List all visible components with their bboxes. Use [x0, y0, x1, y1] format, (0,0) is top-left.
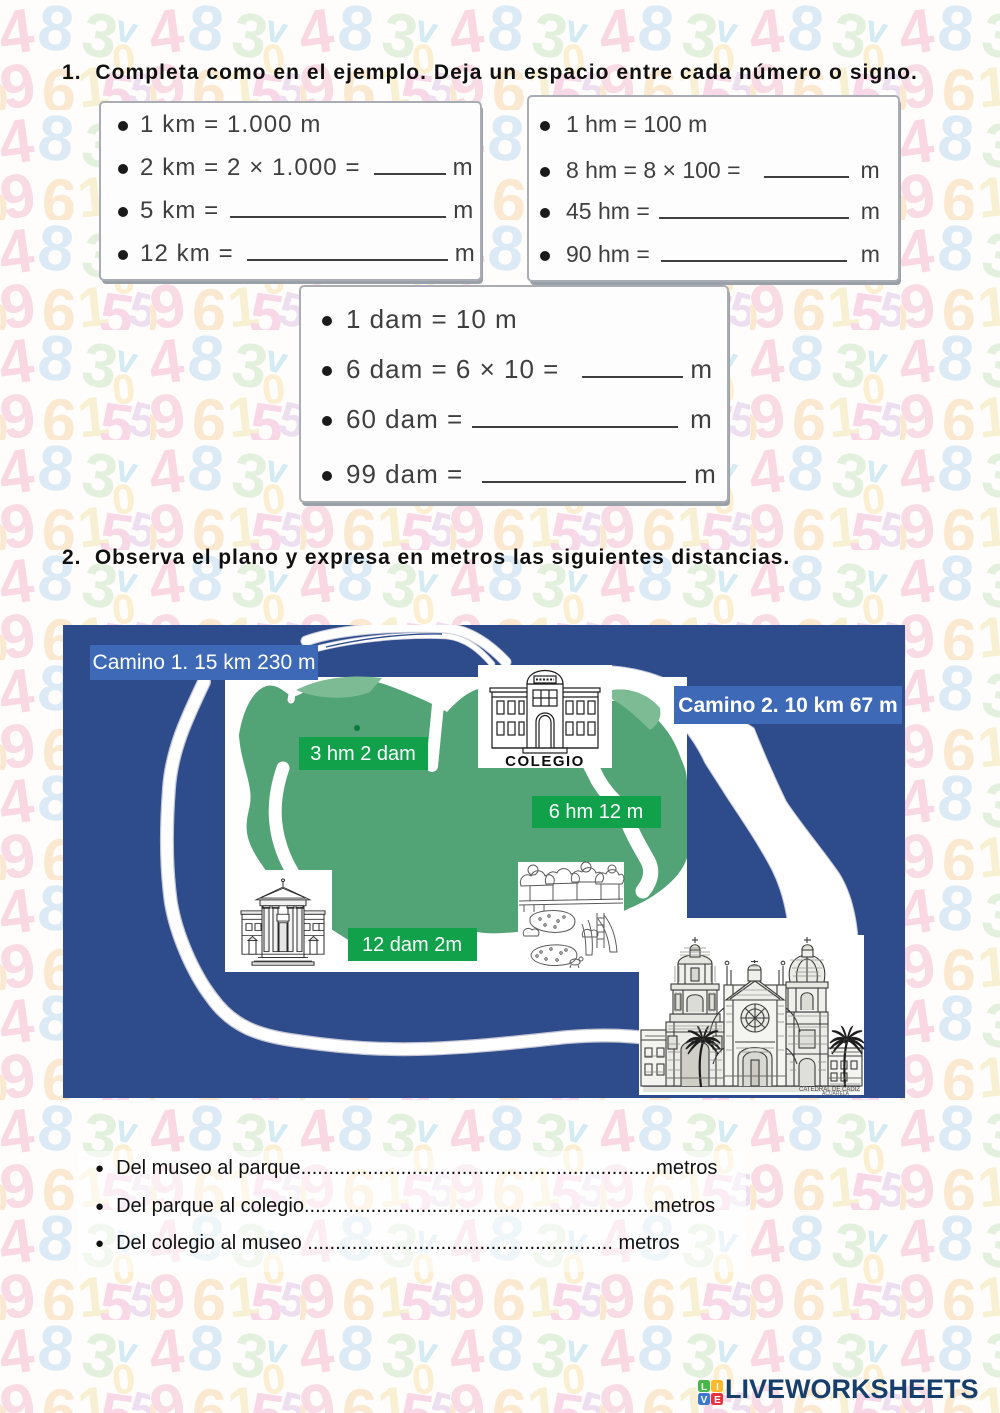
- svg-text:V: V: [701, 1395, 708, 1405]
- svg-text:ACUARELA: ACUARELA: [822, 1091, 850, 1097]
- svg-text:3 hm 2 dam: 3 hm 2 dam: [310, 743, 416, 765]
- svg-text:E: E: [714, 1395, 721, 1405]
- svg-text:6 hm 12 m: 6 hm 12 m: [549, 801, 643, 823]
- svg-text:COLEGIO: COLEGIO: [505, 753, 585, 770]
- svg-text:L: L: [701, 1382, 707, 1393]
- svg-text:I: I: [716, 1382, 719, 1393]
- svg-text:Camino 1. 15 km 230 m: Camino 1. 15 km 230 m: [93, 651, 316, 674]
- svg-text:Camino 2. 10 km 67 m: Camino 2. 10 km 67 m: [678, 694, 897, 717]
- svg-text:12 dam 2m: 12 dam 2m: [362, 934, 462, 956]
